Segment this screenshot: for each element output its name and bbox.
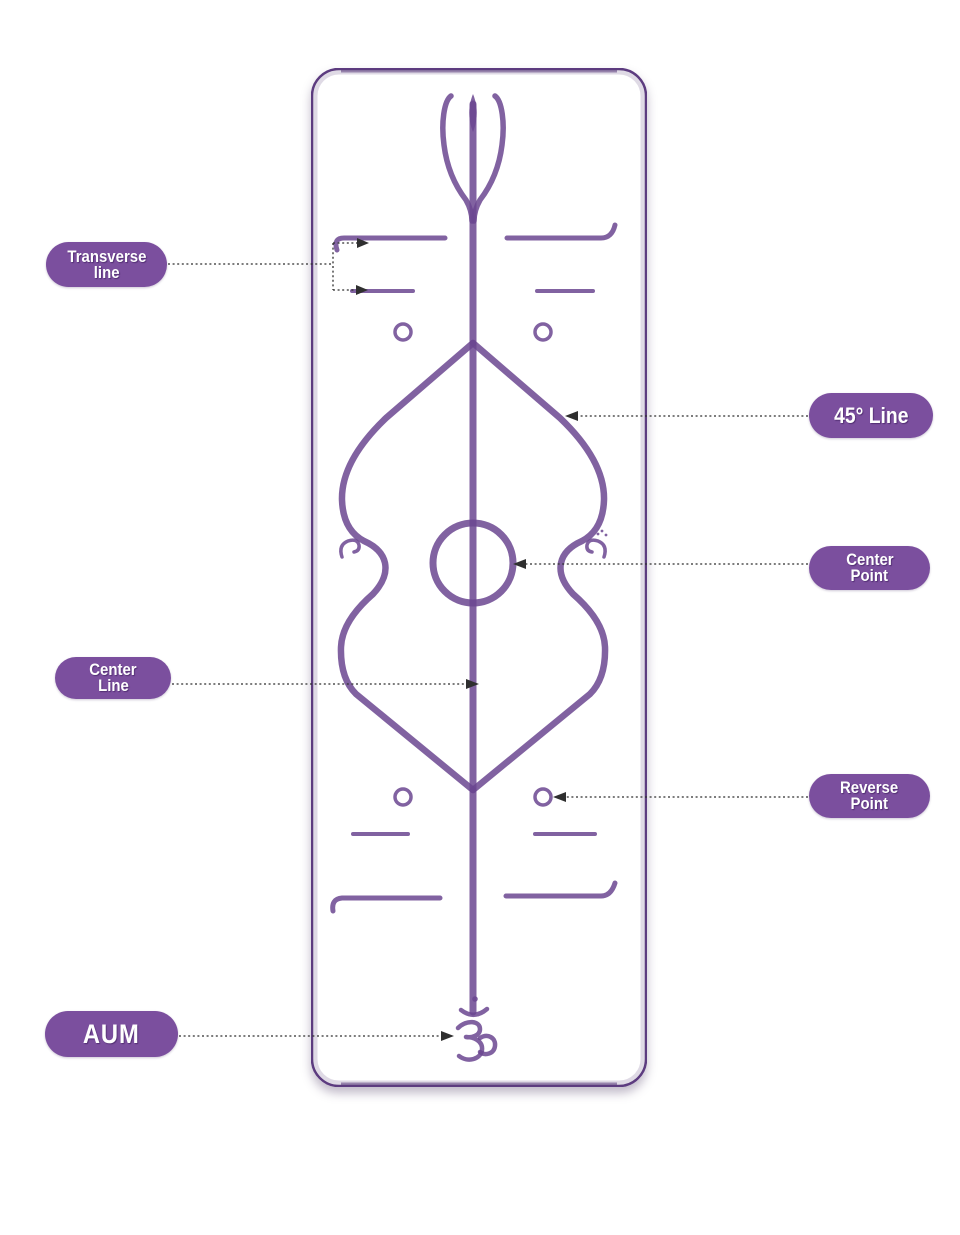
aum-symbol bbox=[458, 996, 495, 1059]
swan-motif-left bbox=[341, 540, 359, 557]
label-transverse-line: Transverse line bbox=[46, 242, 167, 287]
mat-texture bbox=[312, 69, 646, 1086]
yoga-mat bbox=[311, 68, 647, 1087]
yoga-mat-graphic bbox=[311, 68, 647, 1087]
label-aum: AUM bbox=[45, 1011, 178, 1057]
label-center-line: Center Line bbox=[55, 657, 171, 699]
label-reverse-point: Reverse Point bbox=[809, 774, 930, 818]
label-text: Line bbox=[98, 678, 129, 694]
label-text: line bbox=[94, 265, 120, 281]
label-text: 45° Line bbox=[834, 403, 908, 429]
product-diagram: Transverse line 45° Line Center Point Ce… bbox=[0, 0, 960, 1235]
label-text: AUM bbox=[83, 1019, 140, 1050]
label-text: Point bbox=[851, 796, 888, 812]
label-center-point: Center Point bbox=[809, 546, 930, 590]
label-text: Point bbox=[851, 568, 888, 584]
label-45-line: 45° Line bbox=[809, 393, 933, 438]
